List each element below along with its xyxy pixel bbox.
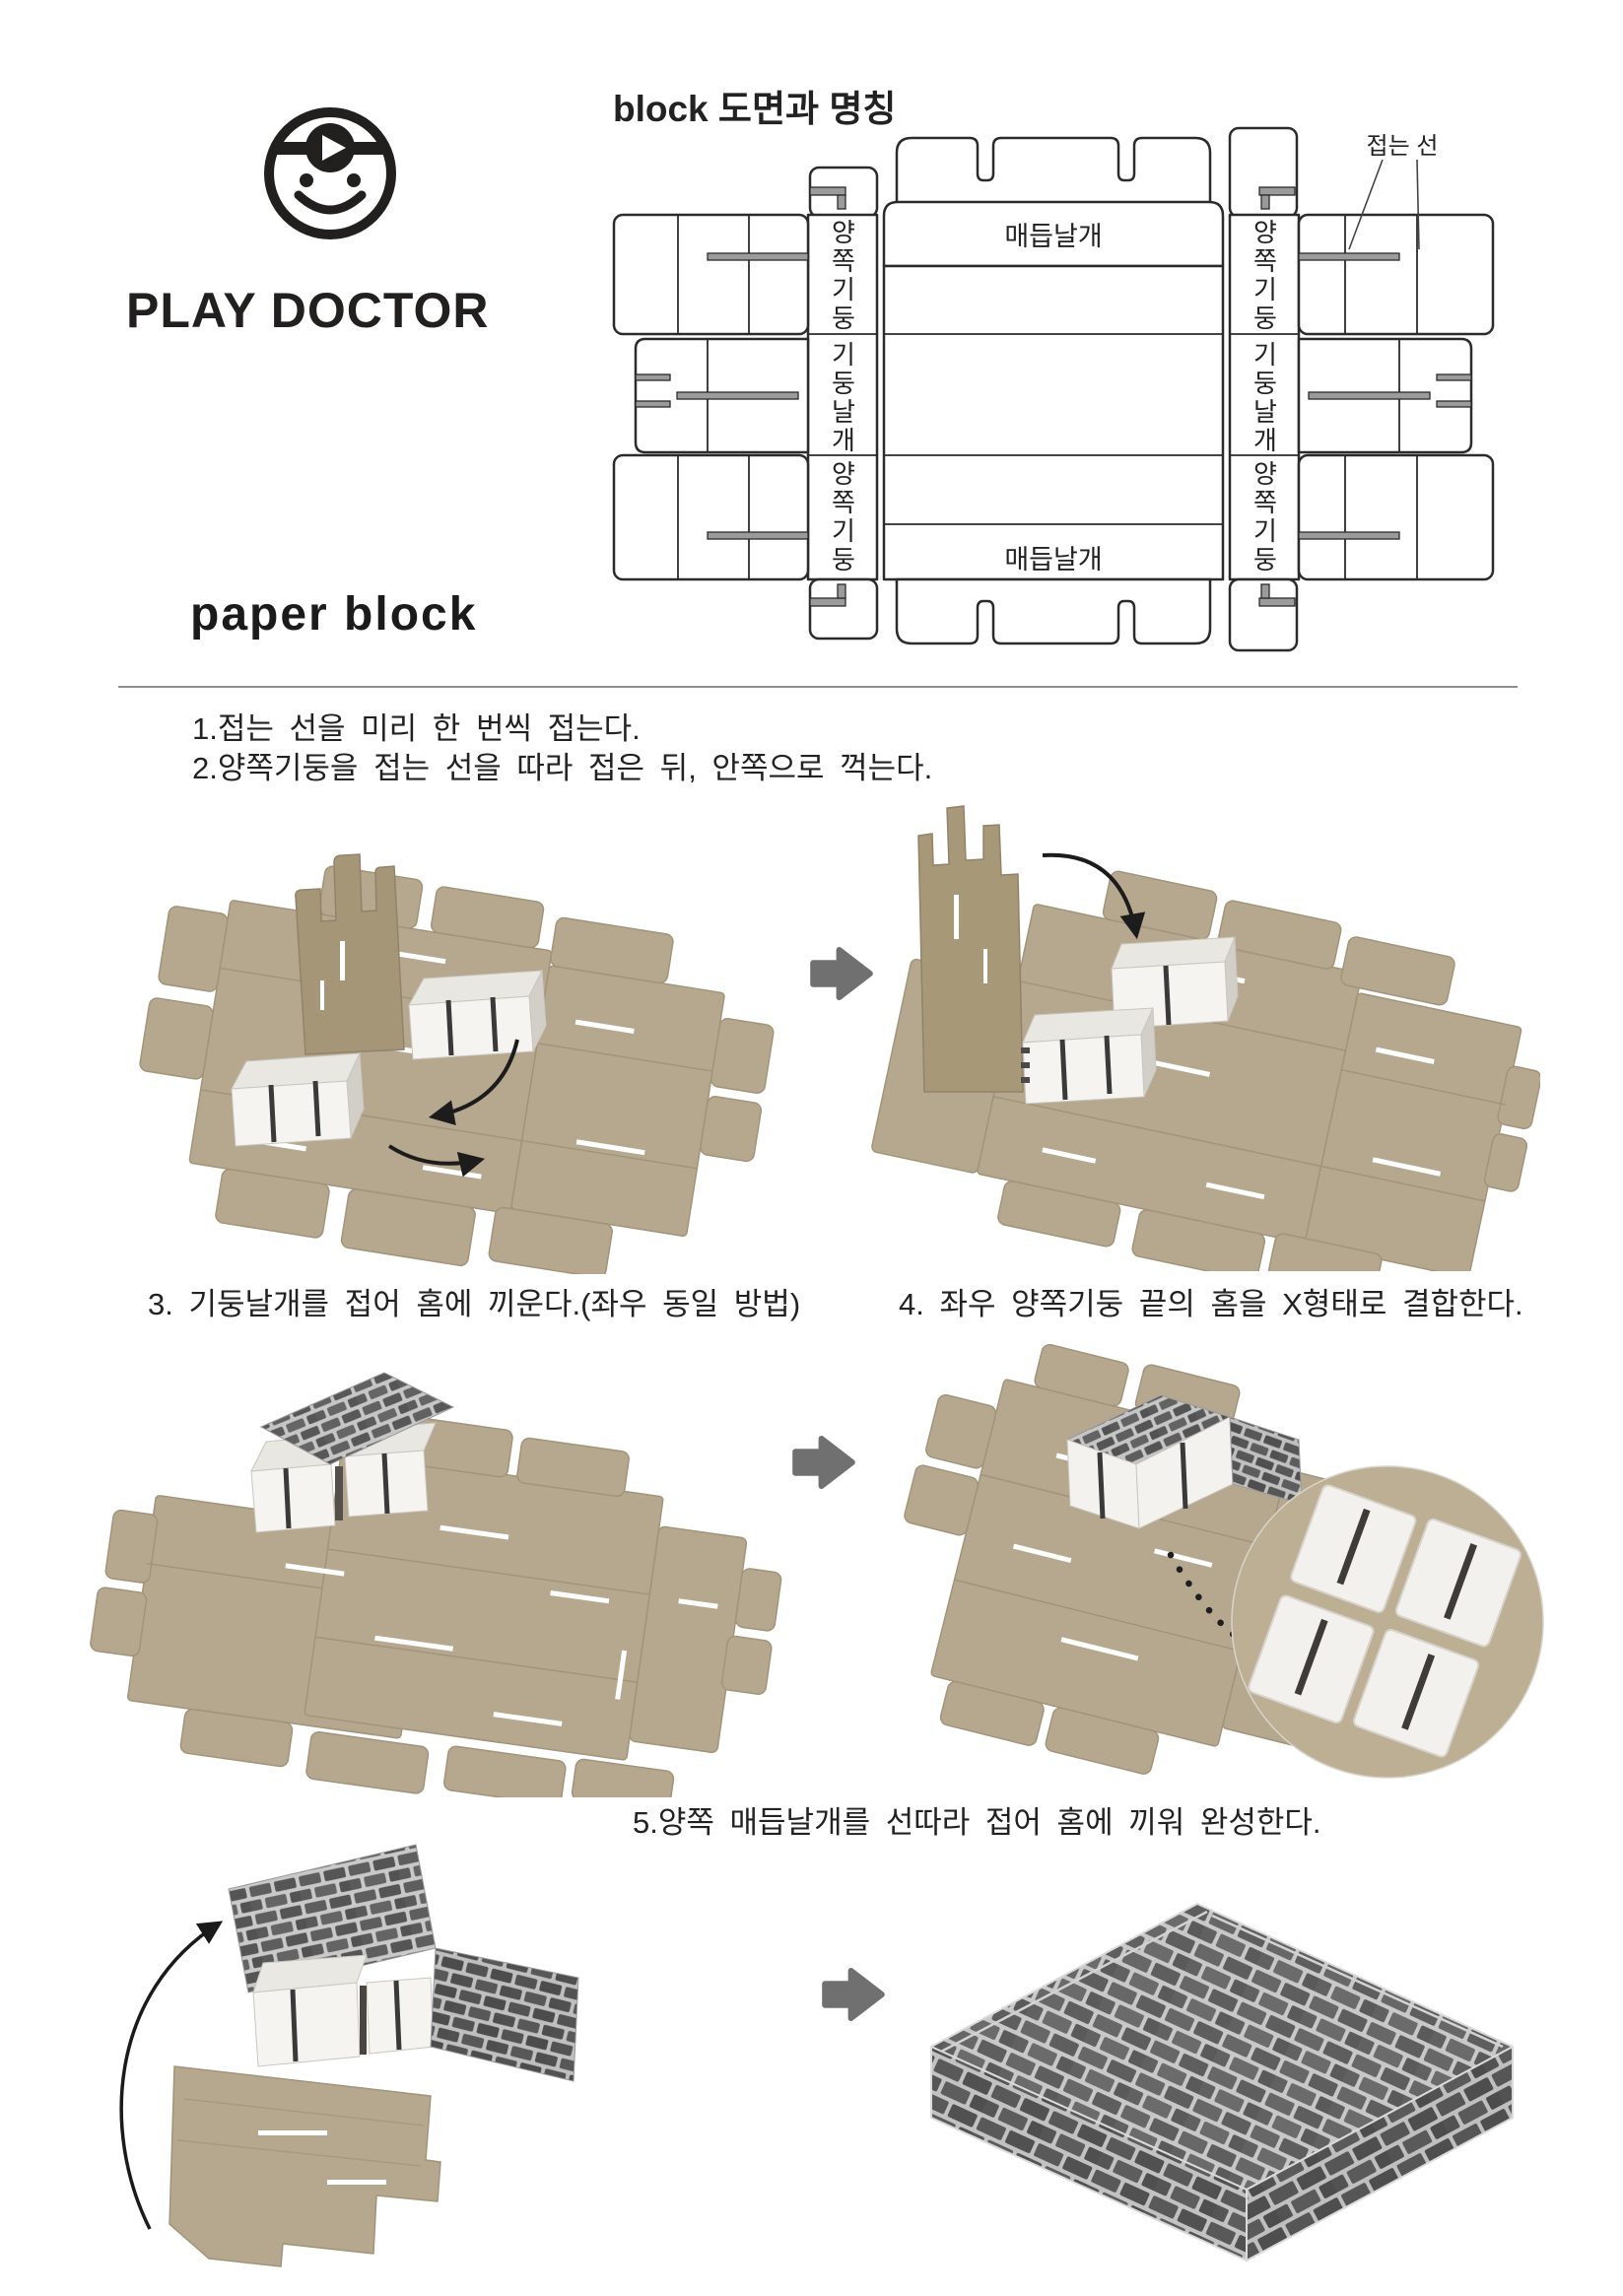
zoom-inset-circle	[1232, 1466, 1543, 1778]
logo-right-eye	[347, 173, 361, 187]
brick-block-structure	[229, 1845, 578, 2081]
instruction-step-2: 2.양쪽기둥을 접는 선을 따라 접은 뒤, 안쪽으로 꺽는다.	[192, 743, 932, 787]
photo-step2-pillars-folded	[836, 796, 1540, 1271]
photo-step1-2-unfolded	[94, 803, 798, 1274]
label-left-pillar-wing: 기둥날개	[808, 341, 877, 455]
instruction-step-5: 5.양쪽 매듭날개를 선따라 접어 홈에 끼워 완성한다.	[633, 1797, 1321, 1842]
finished-block	[931, 1904, 1513, 2261]
instruction-sheet: PLAY DOCTOR paper block block 도면과 명칭	[0, 0, 1623, 2296]
logo-left-eye	[300, 173, 313, 187]
section-divider	[118, 686, 1518, 688]
assembled-pillar-structure	[251, 1373, 453, 1532]
photo-step4-x-joint	[836, 1326, 1552, 1793]
upright-pillar-wing-flap	[918, 806, 1023, 1092]
label-knot-wing-bottom: 매듭날개	[884, 537, 1223, 576]
instruction-step-3: 3. 기둥날개를 접어 홈에 끼운다.(좌우 동일 방법)	[148, 1279, 800, 1323]
cardboard-template	[89, 1377, 790, 1797]
instruction-step-1: 1.접는 선을 미리 한 번씩 접는다.	[192, 704, 641, 748]
open-knot-wing-flap	[169, 2066, 440, 2266]
arrow-right-icon	[818, 1959, 889, 2030]
edge-dashes	[1021, 1047, 1030, 1083]
fold-line-label: 접는 선	[1348, 126, 1456, 161]
label-right-pillar-wing: 기둥날개	[1230, 341, 1299, 455]
photo-finished-brick-block	[882, 1874, 1552, 2268]
label-knot-wing-top: 매듭날개	[884, 212, 1223, 255]
photo-step5-closing-knot-wing	[81, 1835, 639, 2286]
cardboard-template	[116, 842, 788, 1274]
upright-pillar-wing-flap	[296, 854, 404, 1054]
label-left-side-pillar-bottom: 양쪽기둥	[808, 458, 877, 576]
label-left-side-pillar-top: 양쪽기둥	[808, 218, 877, 334]
instruction-step-4: 4. 좌우 양쪽기둥 끝의 홈을 X형태로 결합한다.	[899, 1279, 1523, 1323]
product-name: paper block	[190, 587, 477, 642]
block-template-diagram	[611, 113, 1508, 680]
play-doctor-smiley-icon	[261, 104, 399, 242]
photo-step3-pillar-wing-inserted	[89, 1328, 790, 1797]
label-right-side-pillar-bottom: 양쪽기둥	[1230, 458, 1299, 576]
label-right-side-pillar-top: 양쪽기둥	[1230, 218, 1299, 334]
brand-name: PLAY DOCTOR	[126, 282, 490, 339]
logo-smile	[299, 195, 362, 210]
